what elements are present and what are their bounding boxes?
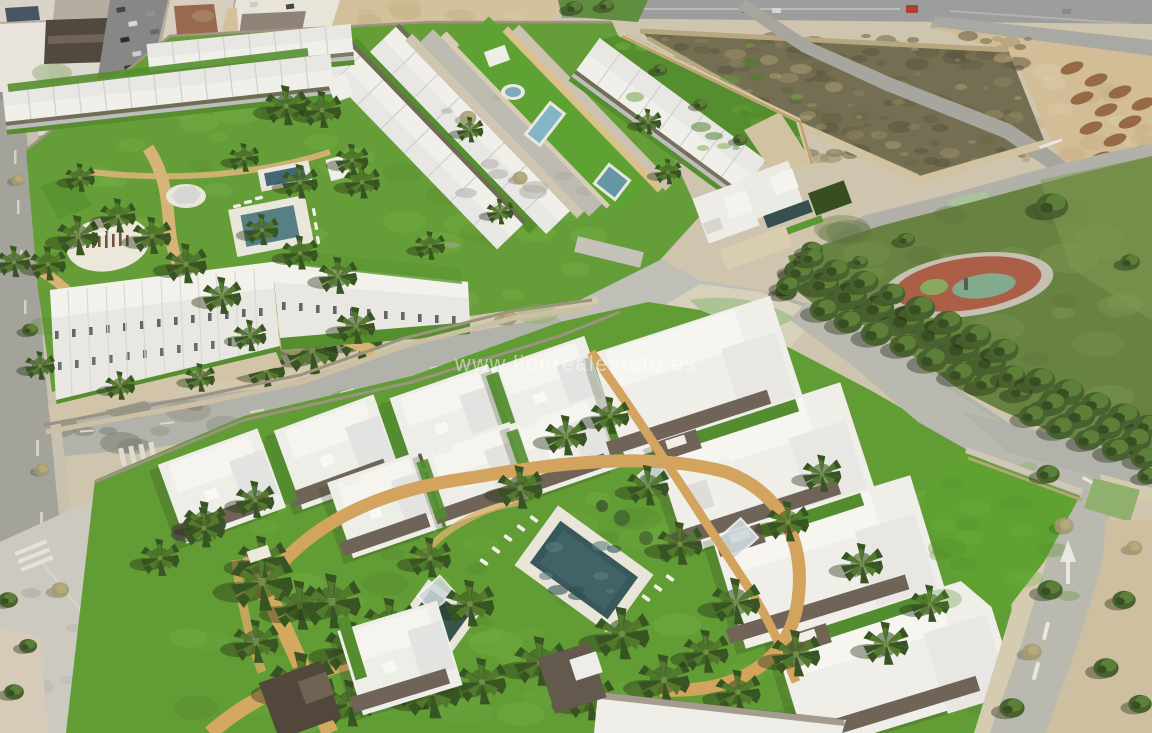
svg-text:www.lionrealestate.es: www.lionrealestate.es xyxy=(454,351,697,376)
